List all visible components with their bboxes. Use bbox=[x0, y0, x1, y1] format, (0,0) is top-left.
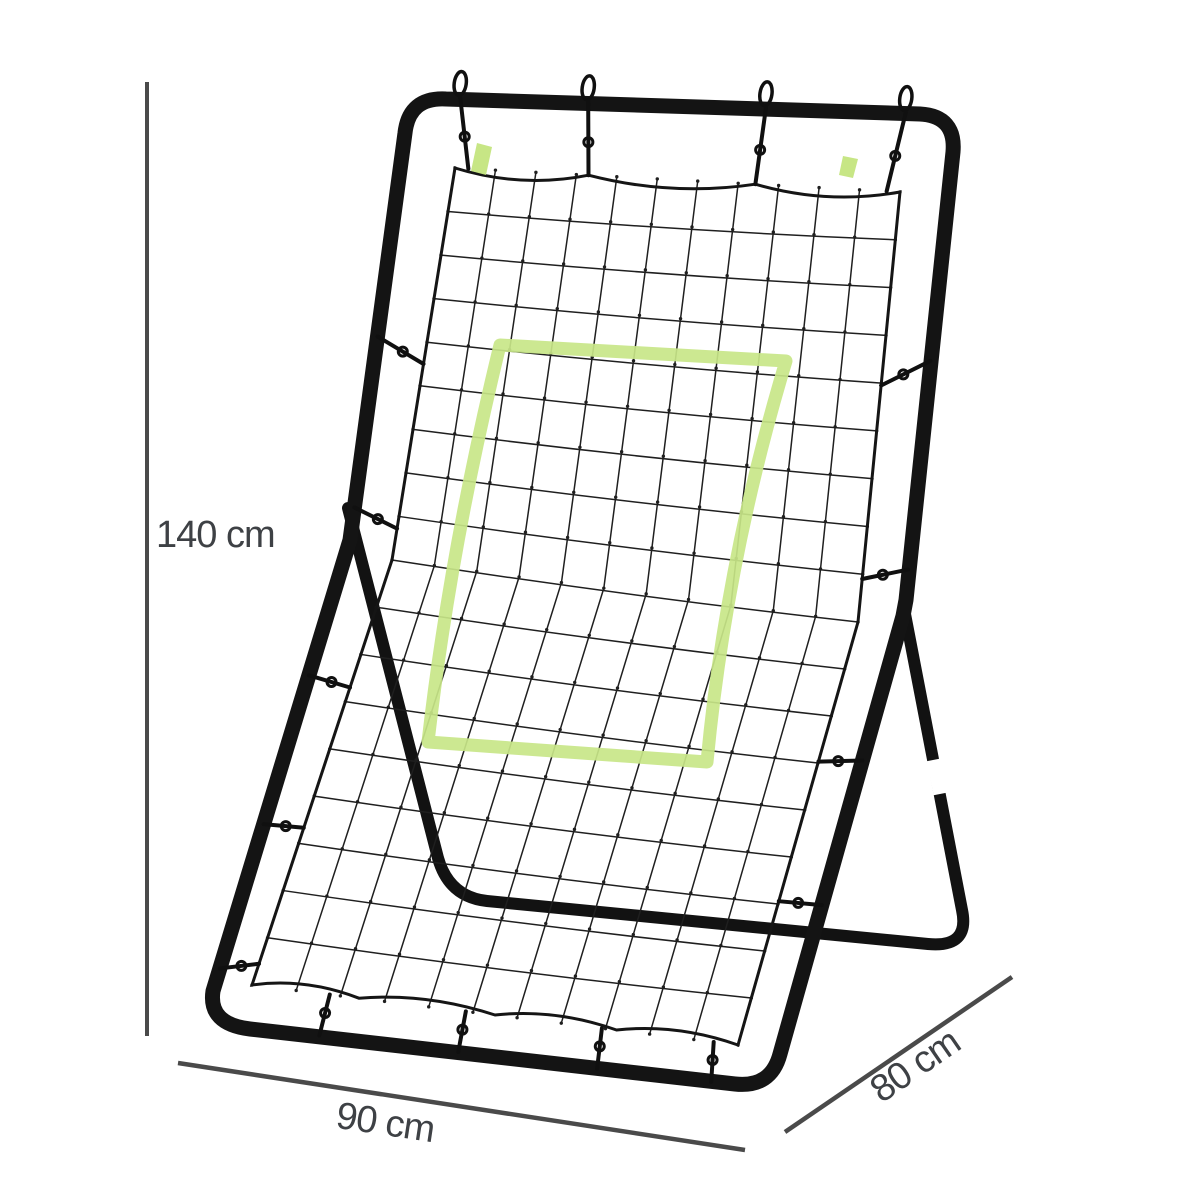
net-knot bbox=[446, 476, 449, 479]
net-knot bbox=[341, 847, 344, 850]
net-knot bbox=[325, 894, 328, 897]
net-knot bbox=[480, 256, 483, 259]
net-knot bbox=[662, 985, 665, 988]
net-knot bbox=[761, 324, 764, 327]
net-knot bbox=[659, 692, 662, 695]
net-strand-horizontal bbox=[268, 938, 752, 998]
net-knot bbox=[545, 628, 548, 631]
net-strand-horizontal bbox=[314, 796, 791, 857]
net-knot bbox=[524, 531, 527, 534]
net-knot bbox=[814, 615, 817, 618]
net-knot bbox=[414, 758, 417, 761]
net-knot bbox=[601, 733, 604, 736]
net-knot bbox=[488, 481, 491, 484]
net-knot bbox=[692, 552, 695, 555]
net-knot bbox=[609, 220, 612, 223]
net-knot bbox=[703, 844, 706, 847]
net-knot bbox=[427, 1005, 430, 1008]
net-knot bbox=[750, 417, 753, 420]
net-knot bbox=[544, 922, 547, 925]
net-knot bbox=[442, 958, 445, 961]
net-knot bbox=[458, 764, 461, 767]
height-dimension-label: 140 cm bbox=[156, 516, 275, 554]
net-knot bbox=[501, 769, 504, 772]
net-knot bbox=[383, 1000, 386, 1003]
net-knot bbox=[616, 686, 619, 689]
net-knot bbox=[824, 520, 827, 523]
net-knot bbox=[528, 215, 531, 218]
net-strand-horizontal bbox=[441, 255, 891, 287]
net-knot bbox=[486, 963, 489, 966]
net-knot bbox=[356, 800, 359, 803]
net-knot bbox=[817, 186, 820, 189]
net-knot bbox=[369, 900, 372, 903]
net-knot bbox=[660, 839, 663, 842]
net-knot bbox=[787, 468, 790, 471]
net-knot bbox=[584, 400, 587, 403]
net-knot bbox=[534, 171, 537, 174]
net-knot bbox=[812, 233, 815, 236]
net-knot bbox=[603, 265, 606, 268]
net-knot bbox=[736, 182, 739, 185]
net-knot bbox=[848, 283, 851, 286]
net-knot bbox=[482, 525, 485, 528]
net-knot bbox=[709, 413, 712, 416]
leg-adjustment-band bbox=[933, 760, 940, 794]
net-knot bbox=[453, 432, 456, 435]
net-knot bbox=[573, 828, 576, 831]
bungee-cord bbox=[711, 1042, 714, 1082]
net-knot bbox=[656, 500, 659, 503]
net-knot bbox=[632, 359, 635, 362]
net-knot bbox=[644, 592, 647, 595]
net-knot bbox=[701, 698, 704, 701]
net-knot bbox=[675, 938, 678, 941]
net-knot bbox=[608, 541, 611, 544]
net-strand-horizontal bbox=[299, 843, 778, 904]
tape-mark-right bbox=[839, 156, 858, 178]
net-knot bbox=[439, 520, 442, 523]
net-knot bbox=[644, 268, 647, 271]
net-knot bbox=[714, 367, 717, 370]
net-knot bbox=[720, 320, 723, 323]
net-knot bbox=[626, 405, 629, 408]
net-knot bbox=[673, 645, 676, 648]
net-knot bbox=[689, 891, 692, 894]
net-knot bbox=[536, 441, 539, 444]
net-knot bbox=[515, 869, 518, 872]
net-knot bbox=[853, 236, 856, 239]
net-knot bbox=[745, 464, 748, 467]
net-knot bbox=[838, 378, 841, 381]
net-knot bbox=[486, 817, 489, 820]
net-knot bbox=[777, 562, 780, 565]
net-knot bbox=[501, 392, 504, 395]
net-knot bbox=[562, 262, 565, 265]
net-strand-vertical bbox=[650, 188, 819, 1034]
net-knot bbox=[433, 564, 436, 567]
net-knot bbox=[687, 598, 690, 601]
net-knot bbox=[730, 750, 733, 753]
net-knot bbox=[573, 681, 576, 684]
net-knot bbox=[529, 822, 532, 825]
net-knot bbox=[744, 703, 747, 706]
net-knot bbox=[530, 486, 533, 489]
net-knot bbox=[457, 911, 460, 914]
net-knot bbox=[698, 505, 701, 508]
net-knot bbox=[632, 933, 635, 936]
net-knot bbox=[294, 989, 297, 992]
net-knot bbox=[487, 670, 490, 673]
net-knot bbox=[428, 858, 431, 861]
net-strand-horizontal bbox=[392, 560, 858, 622]
net-strand-vertical bbox=[252, 168, 455, 985]
net-knot bbox=[644, 739, 647, 742]
net-knot bbox=[687, 745, 690, 748]
net-knot bbox=[756, 370, 759, 373]
net-strand-horizontal bbox=[399, 516, 863, 574]
net-knot bbox=[602, 880, 605, 883]
net-knot bbox=[614, 496, 617, 499]
net-knot bbox=[662, 455, 665, 458]
tape-mark-left bbox=[471, 143, 492, 175]
net-knot bbox=[560, 581, 563, 584]
net-knot bbox=[578, 446, 581, 449]
net-knot bbox=[719, 944, 722, 947]
net-knot bbox=[725, 274, 728, 277]
net-knot bbox=[777, 184, 780, 187]
net-strand-vertical bbox=[605, 185, 778, 1028]
net-knot bbox=[620, 450, 623, 453]
net-knot bbox=[487, 212, 490, 215]
net-knot bbox=[616, 833, 619, 836]
net-knot bbox=[471, 1011, 474, 1014]
target-rectangle bbox=[428, 345, 786, 762]
net-knot bbox=[792, 421, 795, 424]
net-knot bbox=[310, 942, 313, 945]
net-knot bbox=[807, 280, 810, 283]
net-knot bbox=[467, 344, 470, 347]
net-knot bbox=[556, 307, 559, 310]
net-knot bbox=[782, 515, 785, 518]
net-knot bbox=[494, 168, 497, 171]
net-knot bbox=[773, 756, 776, 759]
net-knot bbox=[685, 271, 688, 274]
net-knot bbox=[772, 609, 775, 612]
net-knot bbox=[417, 611, 420, 614]
net-knot bbox=[843, 330, 846, 333]
net-strand-horizontal bbox=[434, 299, 886, 336]
net-knot bbox=[495, 437, 498, 440]
net-knot bbox=[502, 622, 505, 625]
bungee-cord bbox=[818, 761, 862, 762]
net-knot bbox=[471, 864, 474, 867]
net-knot bbox=[587, 781, 590, 784]
net-knot bbox=[833, 425, 836, 428]
net-knot bbox=[630, 639, 633, 642]
net-knot bbox=[516, 722, 519, 725]
net-knot bbox=[760, 803, 763, 806]
net-knot bbox=[558, 728, 561, 731]
net-knot bbox=[731, 228, 734, 231]
net-knot bbox=[797, 374, 800, 377]
net-knot bbox=[800, 662, 803, 665]
net-knot bbox=[673, 792, 676, 795]
net-strand-horizontal bbox=[448, 212, 895, 240]
net-knot bbox=[588, 634, 591, 637]
net-knot bbox=[588, 927, 591, 930]
net-knot bbox=[399, 805, 402, 808]
net-knot bbox=[646, 886, 649, 889]
net-knot bbox=[650, 546, 653, 549]
net-knot bbox=[630, 786, 633, 789]
net-knot bbox=[339, 994, 342, 997]
net-knot bbox=[460, 617, 463, 620]
dimension-lines bbox=[147, 82, 1012, 1150]
net-knot bbox=[597, 310, 600, 313]
net-knot bbox=[387, 706, 390, 709]
net-knot bbox=[371, 753, 374, 756]
bungee-cord bbox=[354, 507, 397, 528]
net-knot bbox=[530, 675, 533, 678]
net-knot bbox=[543, 396, 546, 399]
net-knot bbox=[354, 947, 357, 950]
net-knot bbox=[706, 991, 709, 994]
net-knot bbox=[692, 1038, 695, 1041]
net-knot bbox=[572, 491, 575, 494]
net-knot bbox=[703, 459, 706, 462]
net-knot bbox=[566, 536, 569, 539]
net-knot bbox=[398, 953, 401, 956]
net-knot bbox=[733, 897, 736, 900]
net-knot bbox=[530, 969, 533, 972]
product-dimension-diagram: 140 cm 90 cm 80 cm bbox=[0, 0, 1200, 1200]
net-knot bbox=[384, 853, 387, 856]
net-knot bbox=[475, 570, 478, 573]
net-knot bbox=[515, 1016, 518, 1019]
rebounder-illustration bbox=[0, 0, 1200, 1200]
net-knot bbox=[413, 905, 416, 908]
net-knot bbox=[690, 225, 693, 228]
net-knot bbox=[656, 177, 659, 180]
net-knot bbox=[473, 300, 476, 303]
net-knot bbox=[560, 1021, 563, 1024]
bungee-cord bbox=[378, 337, 424, 365]
net-knot bbox=[667, 409, 670, 412]
net-knot bbox=[758, 656, 761, 659]
net-knot bbox=[574, 974, 577, 977]
net-knot bbox=[517, 575, 520, 578]
net-knot bbox=[673, 363, 676, 366]
net-knot bbox=[650, 223, 653, 226]
net-knot bbox=[473, 717, 476, 720]
net-knot bbox=[443, 811, 446, 814]
net-knot bbox=[648, 1032, 651, 1035]
net-knot bbox=[514, 304, 517, 307]
net-knot bbox=[615, 175, 618, 178]
net-knot bbox=[746, 850, 749, 853]
net-knot bbox=[717, 797, 720, 800]
net-knot bbox=[802, 327, 805, 330]
net-knot bbox=[544, 775, 547, 778]
net-knot bbox=[568, 218, 571, 221]
net-knot bbox=[500, 916, 503, 919]
net-knot bbox=[558, 875, 561, 878]
net-knot bbox=[696, 179, 699, 182]
net-knot bbox=[679, 317, 682, 320]
net-knot bbox=[766, 277, 769, 280]
net-knot bbox=[819, 567, 822, 570]
net-knot bbox=[787, 709, 790, 712]
net-knot bbox=[460, 388, 463, 391]
net-knot bbox=[521, 259, 524, 262]
net-knot bbox=[602, 586, 605, 589]
net-knot bbox=[772, 230, 775, 233]
net-knot bbox=[618, 980, 621, 983]
net-knot bbox=[638, 314, 641, 317]
net-knot bbox=[858, 188, 861, 191]
net-knot bbox=[829, 472, 832, 475]
net-knot bbox=[402, 658, 405, 661]
net-knot bbox=[445, 664, 448, 667]
